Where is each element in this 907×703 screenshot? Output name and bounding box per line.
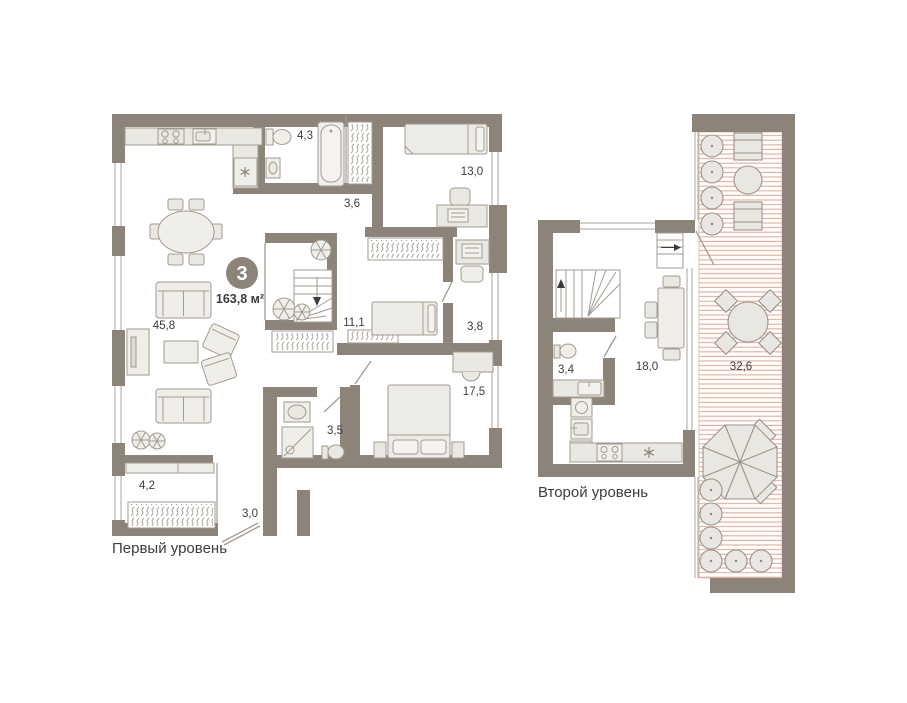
armchair-1	[202, 323, 240, 359]
room-area-label: 32,6	[730, 361, 752, 373]
closet-corridor	[272, 331, 333, 352]
level1-study	[456, 240, 489, 282]
sink-icon	[193, 129, 216, 144]
bed	[372, 302, 437, 335]
level2-stairs	[556, 231, 714, 357]
washbasin-icon	[284, 402, 310, 422]
upper-stair-run	[657, 233, 683, 268]
room-area-label: 13,0	[461, 166, 483, 178]
lounge-chair	[734, 133, 762, 160]
desk	[456, 240, 489, 264]
stove-icon	[597, 444, 622, 461]
chair	[461, 266, 483, 282]
room-area-label: 3,6	[344, 198, 360, 210]
level1-kitchen	[125, 128, 262, 188]
bathtub-icon	[318, 122, 344, 186]
room-area-label: 17,5	[463, 386, 485, 398]
room-area-label: 3,0	[242, 508, 258, 520]
level1-bedroom3	[374, 352, 493, 458]
toilet-icon	[554, 344, 576, 358]
armchair-2	[201, 352, 238, 386]
room-area-label: 11,1	[343, 317, 365, 329]
washbasin-icon	[266, 158, 280, 178]
bath-counter	[553, 380, 604, 397]
level2-title: Второй уровень	[538, 484, 648, 501]
hall-shelf	[126, 463, 214, 473]
level1-living-room	[127, 199, 240, 449]
desk	[437, 205, 487, 227]
dining-table	[150, 199, 222, 265]
level1-title: Первый уровень	[112, 540, 227, 557]
toilet-icon	[266, 129, 291, 145]
room-area-label: 3,5	[327, 425, 343, 437]
nightstand	[452, 442, 464, 458]
shower-icon	[282, 427, 313, 458]
room-area-label: 4,3	[297, 130, 313, 142]
sofa-top	[156, 282, 211, 318]
level1-stairs	[273, 240, 332, 322]
lounge-chair	[734, 202, 762, 230]
level1-bedroom2	[372, 302, 437, 335]
fridge-icon	[234, 158, 257, 186]
floor-plan-page: 3 163,8 м² 45,8 4,3 3,6 13,0 11,1 3,8 17…	[0, 0, 907, 703]
dining-table	[645, 276, 684, 360]
bed	[405, 124, 487, 154]
bed	[388, 385, 450, 458]
vanity-table	[453, 352, 493, 381]
room-area-label: 18,0	[636, 361, 658, 373]
nightstand	[374, 442, 386, 458]
plant-icon	[132, 431, 165, 449]
chair	[450, 188, 470, 205]
room-area-label: 4,2	[139, 480, 155, 492]
sink-icon	[571, 419, 592, 439]
total-area-label: 163,8 м²	[216, 292, 264, 306]
floor-plan-drawing: 3 163,8 м² 45,8 4,3 3,6 13,0 11,1 3,8 17…	[0, 0, 907, 703]
rooms-count: 3	[236, 263, 247, 285]
tv-unit	[127, 329, 149, 375]
washing-machine-icon	[571, 398, 592, 417]
closet-bedroom1	[368, 238, 443, 260]
closet-hall	[128, 502, 215, 528]
stove-icon	[158, 129, 184, 144]
toilet-icon	[322, 445, 344, 459]
room-area-label: 3,8	[467, 321, 483, 333]
coffee-table	[164, 341, 198, 363]
apartment-badge: 3 163,8 м²	[216, 257, 264, 306]
room-area-label: 3,4	[558, 364, 575, 376]
coat-rack	[348, 122, 372, 184]
bathroom-door	[604, 336, 616, 357]
round-table	[734, 166, 762, 194]
sofa-bottom	[156, 389, 211, 423]
room-area-label: 45,8	[153, 320, 175, 332]
